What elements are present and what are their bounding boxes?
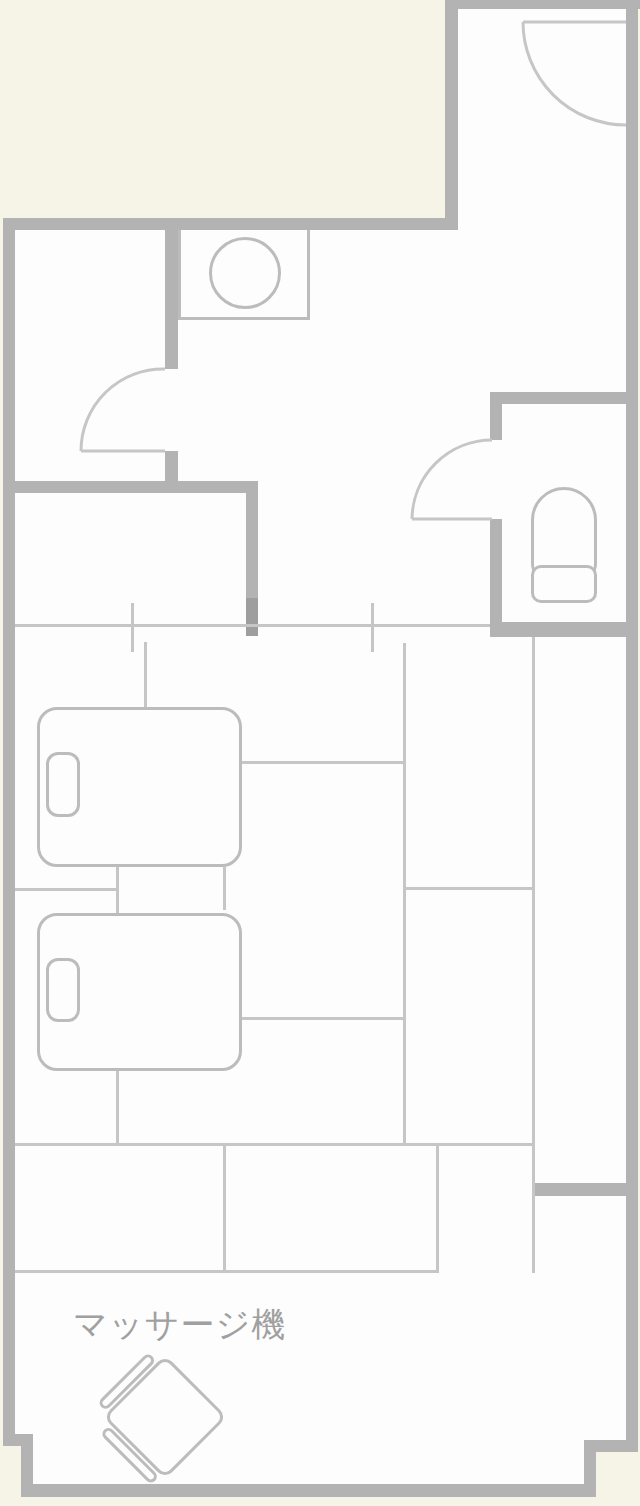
floorplan-canvas: マッサージ機: [0, 0, 640, 1506]
toilet-door-arc: [412, 440, 492, 519]
entrance-door-arc: [523, 22, 626, 125]
massage-chair-label: マッサージ機: [73, 1302, 286, 1348]
bathroom-door-arc: [81, 369, 165, 451]
door-arcs-layer: [0, 0, 640, 1506]
